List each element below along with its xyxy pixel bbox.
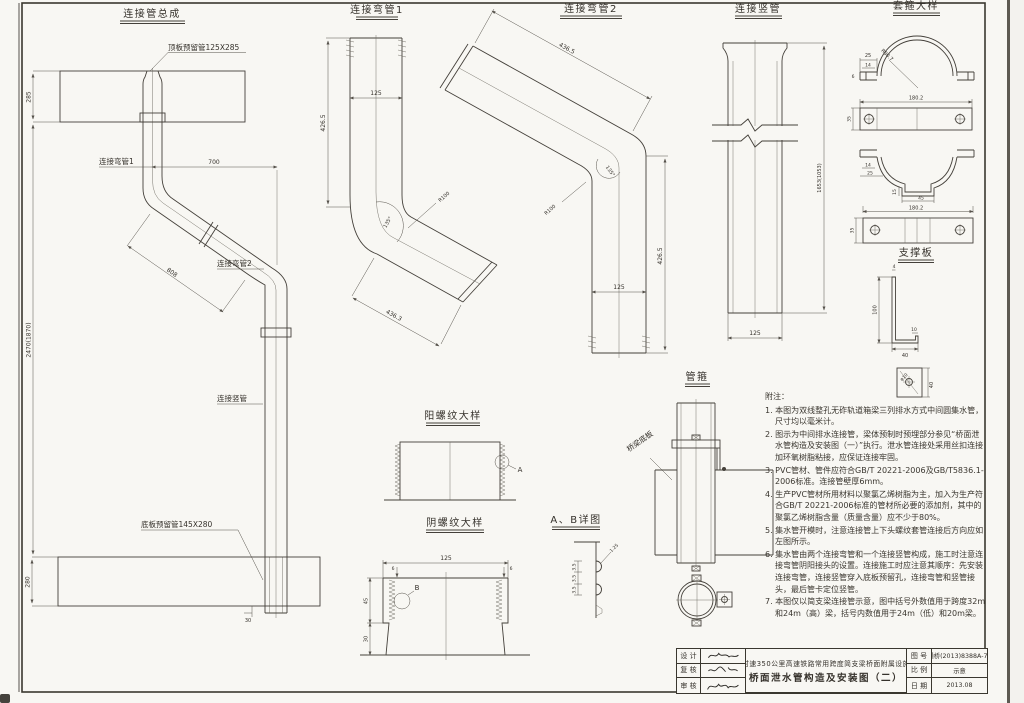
dim-radius: R100	[437, 191, 451, 204]
view-support-plate: 支撑板 4 100 10 40 φ10 40	[873, 246, 936, 397]
view-bend1: 连接弯管1 426.5 125 R100 135° 436.3	[320, 3, 497, 346]
dim-radius: 1.25	[609, 543, 620, 554]
view-thread-detail: A、B详图 3.5 3.5 3.5 1.25	[550, 513, 620, 618]
dim-tab-inner: 14	[865, 63, 871, 69]
dim-bottom-slab: 280	[25, 576, 32, 588]
dim-top-slab: 285	[26, 91, 33, 103]
drawing-title-cell: 时速350公里高速铁路常用跨度简支梁桥面附属设施 桥面泄水管构造及安装图（二）	[746, 649, 907, 693]
label-vertical: 连接竖管	[217, 393, 247, 403]
dim-horizontal: 700	[208, 159, 220, 166]
view-title: 连接管总成	[123, 7, 181, 20]
dim-wall-right: 6	[510, 566, 513, 572]
drawing-sheet: 连接管总成 285 顶板预留管125X285 连接弯管1 700 808 连接弯…	[0, 0, 1024, 703]
dim-leg: 30	[364, 636, 370, 642]
check-label: 复 核	[677, 664, 701, 679]
dim-pitch-1: 3.5	[572, 563, 578, 570]
detail-label-b: B	[415, 584, 420, 592]
view-female-thread: 阴螺纹大样 125 6 6 45 30 B	[360, 516, 530, 660]
label-bend2: 连接弯管2	[217, 258, 252, 268]
dim-thread-zone: 45	[364, 598, 370, 604]
dim-width: 125	[613, 284, 625, 291]
dim-width: 125	[749, 330, 761, 337]
dim-height: 1653(1053)	[817, 163, 823, 192]
dim-plate-height: 35	[847, 116, 853, 122]
page-edge-margin	[1010, 0, 1024, 703]
dim-wall-left: 6	[392, 566, 395, 572]
note-item: 3. PVC管材、管件应符合GB/T 20221-2006及GB/T5836.1…	[765, 465, 987, 488]
view-bend2: 连接弯管2 436.5 R100 135° 426.5 125	[440, 2, 668, 358]
view-title: 套箍大样	[893, 0, 939, 12]
dim-leg: 40	[902, 353, 908, 359]
drawing-no-label: 图 号	[907, 649, 932, 664]
dim-notch-width: 45	[918, 196, 924, 202]
design-signature	[701, 649, 746, 664]
note-item: 2. 图示为中间排水连接管，梁体预制时预埋部分参见“桥面泄水管构造及安装图（一）…	[765, 429, 987, 464]
dim-tab-width-2: 25	[867, 171, 873, 177]
note-item: 5. 集水管开模时，注意连接管上下头螺纹套管连接后方向应如左图所示。	[765, 525, 987, 548]
dim-tab-inner-2: 14	[865, 163, 871, 169]
label-bend1: 连接弯管1	[99, 156, 134, 166]
dim-wall: 6	[852, 74, 855, 80]
dim-overall: 2470(1870)	[26, 322, 33, 357]
dim-height: 426.5	[320, 114, 327, 131]
title-block: 设 计 复 核 审 核 时速350公里高速铁路常用跨度简支梁桥面附属设施 桥面泄…	[676, 648, 988, 694]
drawing-title: 桥面泄水管构造及安装图（二）	[749, 670, 903, 684]
view-title: 连接弯管2	[564, 2, 618, 15]
check-signature	[701, 664, 746, 679]
dim-width: 125	[370, 90, 382, 97]
project-name: 时速350公里高速铁路常用跨度简支梁桥面附属设施	[746, 658, 907, 668]
dim-plate2-length: 180.2	[909, 206, 923, 212]
note-item: 1. 本图为双线整孔无砟轨道箱梁三列排水方式中间圆集水管，尺寸均以毫米计。	[765, 405, 987, 428]
view-title: A、B详图	[550, 513, 601, 526]
dim-angle: 135°	[383, 215, 394, 229]
view-hoop: 套箍大样 25 14 6 R80.7 180.2 35 14 25 15	[847, 0, 975, 243]
view-title: 阴螺纹大样	[426, 516, 484, 529]
dim-pitch-2: 3.5	[572, 575, 578, 582]
dim-square: 40	[929, 382, 935, 388]
dim-pitch-3: 3.5	[572, 586, 578, 593]
dim-bottom-offset: 30	[245, 618, 251, 624]
scan-smudge	[0, 694, 10, 703]
dim-angle: 135°	[604, 165, 616, 179]
drawing-no-value: 通桥(2013)8388A-73	[932, 649, 987, 664]
dim-diagonal: 808	[165, 267, 179, 279]
label-bridge-slab: 桥梁底板	[624, 428, 655, 454]
label-top-pipe: 顶板预留管125X285	[168, 42, 239, 52]
note-item: 4. 生产PVC管材所用材料以聚氯乙烯树脂为主，加入为生产符合GB/T 2022…	[765, 489, 987, 524]
view-title: 支撑板	[899, 246, 934, 259]
view-title: 连接竖管	[735, 2, 781, 15]
dim-plate-length: 180.2	[909, 96, 923, 102]
view-title: 管箍	[686, 370, 709, 383]
dim-notch-depth: 15	[892, 189, 898, 195]
view-male-thread: 阳螺纹大样 A	[384, 409, 523, 500]
signature-design-icon	[705, 650, 741, 662]
scale-label: 比 例	[907, 664, 932, 679]
dim-diagonal: 436.5	[558, 41, 577, 56]
notes-title: 附注：	[765, 391, 987, 403]
review-label: 审 核	[677, 678, 701, 693]
view-assembly: 连接管总成 285 顶板预留管125X285 连接弯管1 700 808 连接弯…	[25, 7, 321, 624]
note-item: 6. 集水管由两个连接弯管和一个连接竖管构成，施工时注意连接弯管阴阳接头的设置。…	[765, 549, 987, 595]
signature-review-icon	[704, 680, 742, 692]
note-item: 7. 本图仅以简支梁连接管示意，图中括号外数值用于跨度32m和24m（高）梁，括…	[765, 596, 987, 619]
detail-label-a: A	[518, 466, 523, 474]
dim-radius: R100	[543, 204, 557, 217]
dim-width: 125	[440, 555, 452, 562]
label-bottom-pipe: 底板预留管145X280	[141, 519, 212, 529]
dim-lip: 10	[911, 327, 917, 333]
review-signature	[701, 678, 746, 693]
dim-height: 100	[873, 305, 879, 315]
view-vertical-pipe: 连接竖管 1653(1053) 125	[712, 2, 827, 341]
date-value: 2013.08	[932, 678, 987, 693]
signature-check-icon	[705, 664, 741, 676]
design-label: 设 计	[677, 649, 701, 664]
notes-panel: 附注： 1. 本图为双线整孔无砟轨道箱梁三列排水方式中间圆集水管，尺寸均以毫米计…	[765, 391, 987, 620]
dim-tab-width: 25	[865, 53, 871, 59]
dim-height: 426.5	[657, 247, 664, 264]
view-pipe-clamp: 管箍 桥梁底板	[624, 370, 773, 626]
scale-value: 示意	[932, 664, 987, 679]
date-label: 日 期	[907, 678, 932, 693]
view-title: 阳螺纹大样	[424, 409, 482, 422]
dim-plate2-height: 35	[850, 228, 856, 234]
dim-thickness: 4	[893, 264, 896, 270]
view-title: 连接弯管1	[350, 3, 404, 16]
